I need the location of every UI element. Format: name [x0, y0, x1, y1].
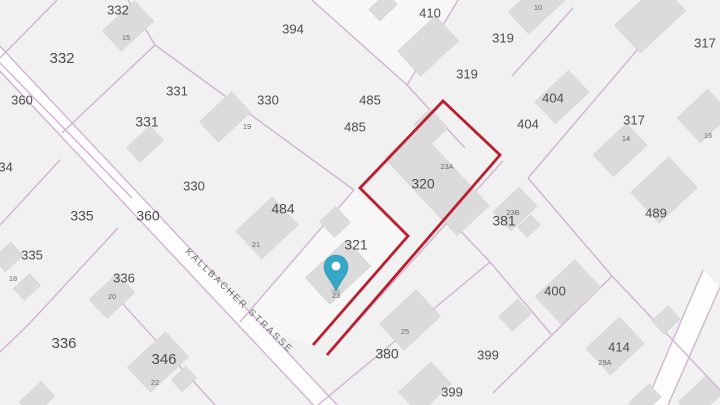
cadastral-map[interactable]: 332 332 360 331 331 394 410 319 319 317 … [0, 0, 720, 405]
parcel-label: 336 [51, 335, 76, 352]
parcel-label: 319 [456, 66, 478, 81]
parcel-label: 320 [411, 176, 435, 192]
parcel-label: 484 [271, 201, 295, 217]
house-number-label: 22 [151, 378, 159, 387]
parcel-label: 317 [694, 35, 716, 50]
parcel-label: 380 [375, 346, 399, 362]
parcel-label: 485 [344, 119, 366, 134]
parcel-label: 319 [492, 30, 514, 45]
house-number-label: 18 [9, 274, 17, 283]
parcel-label: 331 [135, 114, 159, 130]
parcel-label: 394 [282, 21, 304, 36]
parcel-label: 399 [477, 347, 499, 362]
house-number-label: 21 [252, 240, 260, 249]
parcel-label: 317 [623, 112, 645, 127]
parcel-label: 400 [544, 283, 566, 298]
house-number-label: 29A [598, 358, 611, 367]
parcel-label: 346 [151, 351, 176, 368]
parcel-label: 335 [70, 208, 94, 224]
parcel-label: 360 [11, 92, 33, 107]
parcel-label: 331 [166, 83, 188, 98]
parcel-label: 332 [107, 2, 129, 17]
parcel-label: 489 [645, 205, 667, 220]
parcel-label: 410 [419, 5, 441, 20]
parcel-label: 334 [0, 159, 13, 174]
parcel-label: 336 [113, 270, 135, 285]
house-number-label: 23B [506, 208, 519, 217]
house-number-label: 23A [440, 162, 453, 171]
parcel-label: 335 [21, 247, 43, 262]
parcel-label: 399 [441, 384, 463, 399]
parcel-label: 332 [49, 50, 74, 67]
parcel-label: 321 [344, 237, 368, 253]
house-number-label: 10 [534, 3, 542, 12]
parcel-label: 404 [517, 116, 539, 131]
house-number-label: 16 [704, 131, 712, 140]
parcel-label: 404 [542, 90, 564, 105]
house-number-label: 20 [108, 292, 116, 301]
parcel-label: 330 [257, 92, 279, 107]
parcel-label: 485 [359, 92, 381, 107]
house-number-label: 25 [401, 327, 409, 336]
parcel-label: 414 [608, 339, 630, 354]
house-number-label: 14 [622, 134, 630, 143]
pin-hole [332, 262, 341, 271]
house-number-label: 19 [243, 122, 251, 131]
map-canvas[interactable]: 332 332 360 331 331 394 410 319 319 317 … [0, 0, 720, 405]
parcel-label: 330 [183, 178, 205, 193]
parcel-label: 360 [136, 208, 160, 224]
house-number-label: 15 [122, 33, 130, 42]
